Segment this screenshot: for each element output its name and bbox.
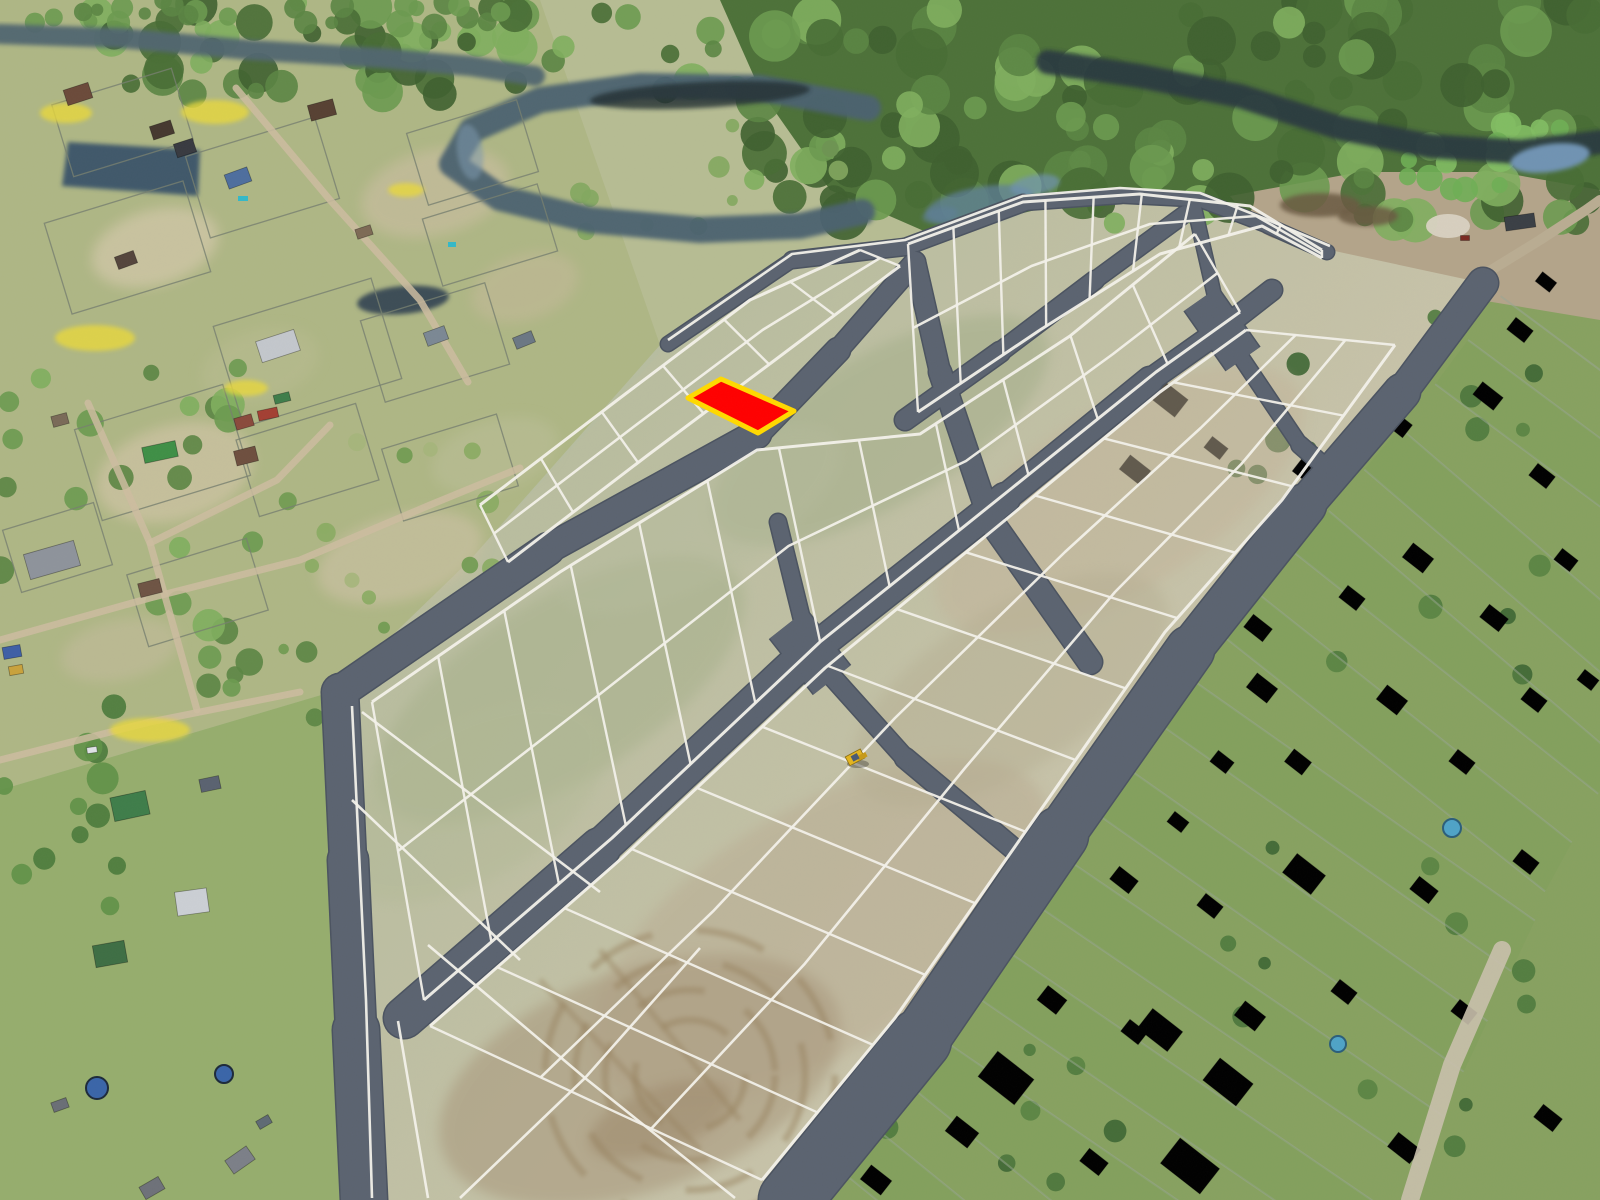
photo-grain-overlay bbox=[0, 0, 1600, 1200]
aerial-plot-map-screenshot bbox=[0, 0, 1600, 1200]
aerial-plot-map bbox=[0, 0, 1600, 1200]
